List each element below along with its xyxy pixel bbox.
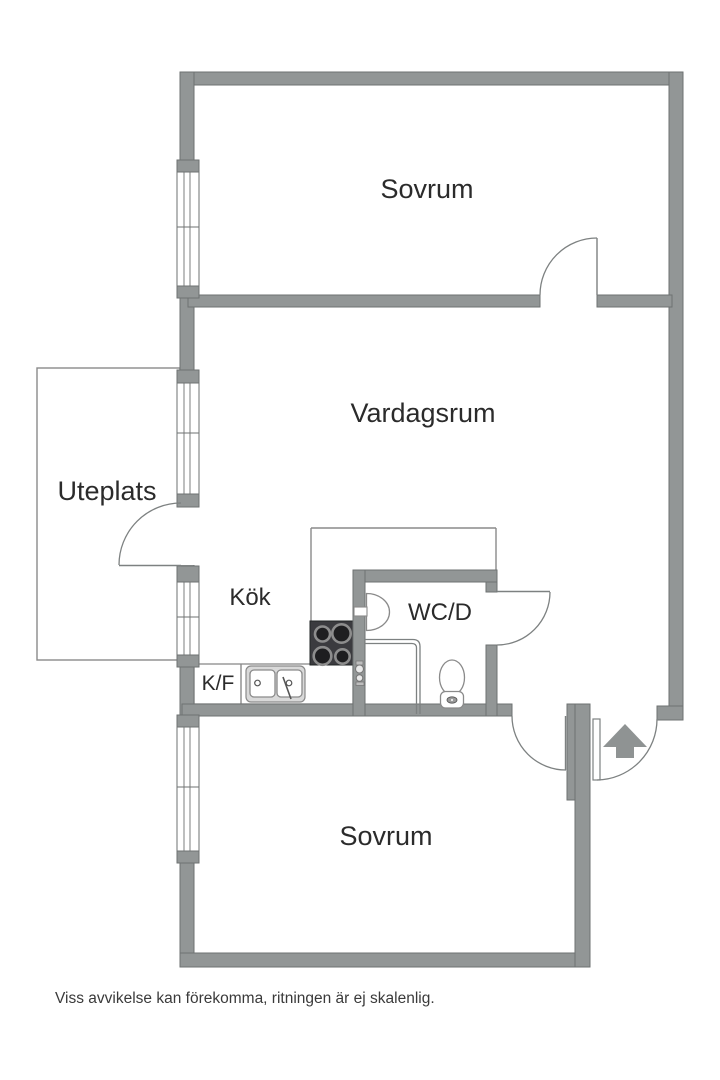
wall-bottom (180, 953, 590, 967)
door-swing-arc (540, 238, 597, 295)
wall-top (180, 72, 683, 85)
wall-right-foot (657, 706, 683, 720)
door-swing-arc (119, 503, 181, 565)
window-glass (177, 172, 199, 286)
burner-icon (332, 624, 350, 642)
drain-icon (286, 680, 292, 686)
washbasin-icon (367, 594, 390, 631)
window-glass (177, 727, 199, 851)
floorplan-page: Sovrum Vardagsrum Uteplats Kök WC/D K/F … (0, 0, 720, 1080)
shower-screen-line (365, 644, 417, 715)
arrow-head (603, 724, 647, 747)
basin-tap-icon (354, 607, 367, 616)
window-icon-livingroom (177, 370, 199, 507)
patio-door-opening (179, 507, 196, 565)
room-label-sovrum-top: Sovrum (380, 174, 473, 204)
floorplan-drawing: Sovrum Vardagsrum Uteplats Kök WC/D K/F … (0, 0, 720, 1080)
shower-screen-line (365, 640, 420, 715)
wall-divider-right (597, 295, 672, 307)
sink-basin-left (250, 670, 275, 697)
arrow-stem (616, 747, 634, 758)
burner-icon (314, 647, 332, 665)
sink-icon (246, 666, 305, 702)
window-icon-kitchen (177, 566, 199, 667)
burner-icon (335, 649, 349, 663)
mixer-part (356, 661, 363, 665)
window-glass (177, 383, 199, 494)
window-glass (177, 582, 199, 655)
wall-wcd-right (486, 645, 497, 716)
window-cap (177, 715, 199, 727)
room-label-kf: K/F (202, 672, 235, 695)
mixer-knob (356, 665, 364, 673)
room-label-sovrum-bottom: Sovrum (339, 821, 432, 851)
wall-wcd-left (353, 570, 365, 716)
door-icon-bedroom-top (540, 238, 597, 295)
window-cap (177, 160, 199, 172)
toilet-button-dot (451, 699, 453, 701)
toilet-icon (440, 660, 465, 708)
room-label-vardagsrum: Vardagsrum (350, 398, 495, 428)
window-icon-bedroom-top (177, 160, 199, 298)
window-cap (177, 494, 199, 507)
wall-bedroom-right (575, 704, 590, 967)
wall-right (669, 72, 683, 720)
uteplats-outline (37, 368, 180, 660)
mixer-knob (356, 675, 363, 682)
room-label-kok: Kök (229, 584, 271, 611)
wall-divider-left (188, 295, 540, 307)
window-cap (177, 370, 199, 383)
door-slab (593, 719, 600, 780)
room-label-wcd: WC/D (408, 599, 472, 626)
door-icon-wcd (497, 592, 550, 646)
toilet-bowl (440, 660, 465, 695)
burner-icon (315, 627, 330, 642)
door-swing-arc (512, 716, 566, 770)
drain-icon (255, 680, 261, 686)
disclaimer-text: Viss avvikelse kan förekomma, ritningen … (55, 990, 435, 1007)
wall-wcd-top (353, 570, 497, 582)
door-icon-patio (119, 503, 181, 566)
window-icon-bedroom-bottom (177, 715, 199, 863)
door-swing-arc (497, 592, 550, 645)
entrance-arrow-icon (603, 724, 647, 758)
mixer-part (356, 682, 364, 686)
window-cap (177, 655, 199, 667)
window-cap (177, 286, 199, 298)
door-icon-bedroom-bottom (512, 716, 566, 770)
interior-walls (182, 295, 672, 716)
wall-wcd-right-stub (486, 582, 497, 592)
window-cap (177, 566, 199, 582)
window-cap (177, 851, 199, 863)
room-label-uteplats: Uteplats (57, 476, 156, 506)
